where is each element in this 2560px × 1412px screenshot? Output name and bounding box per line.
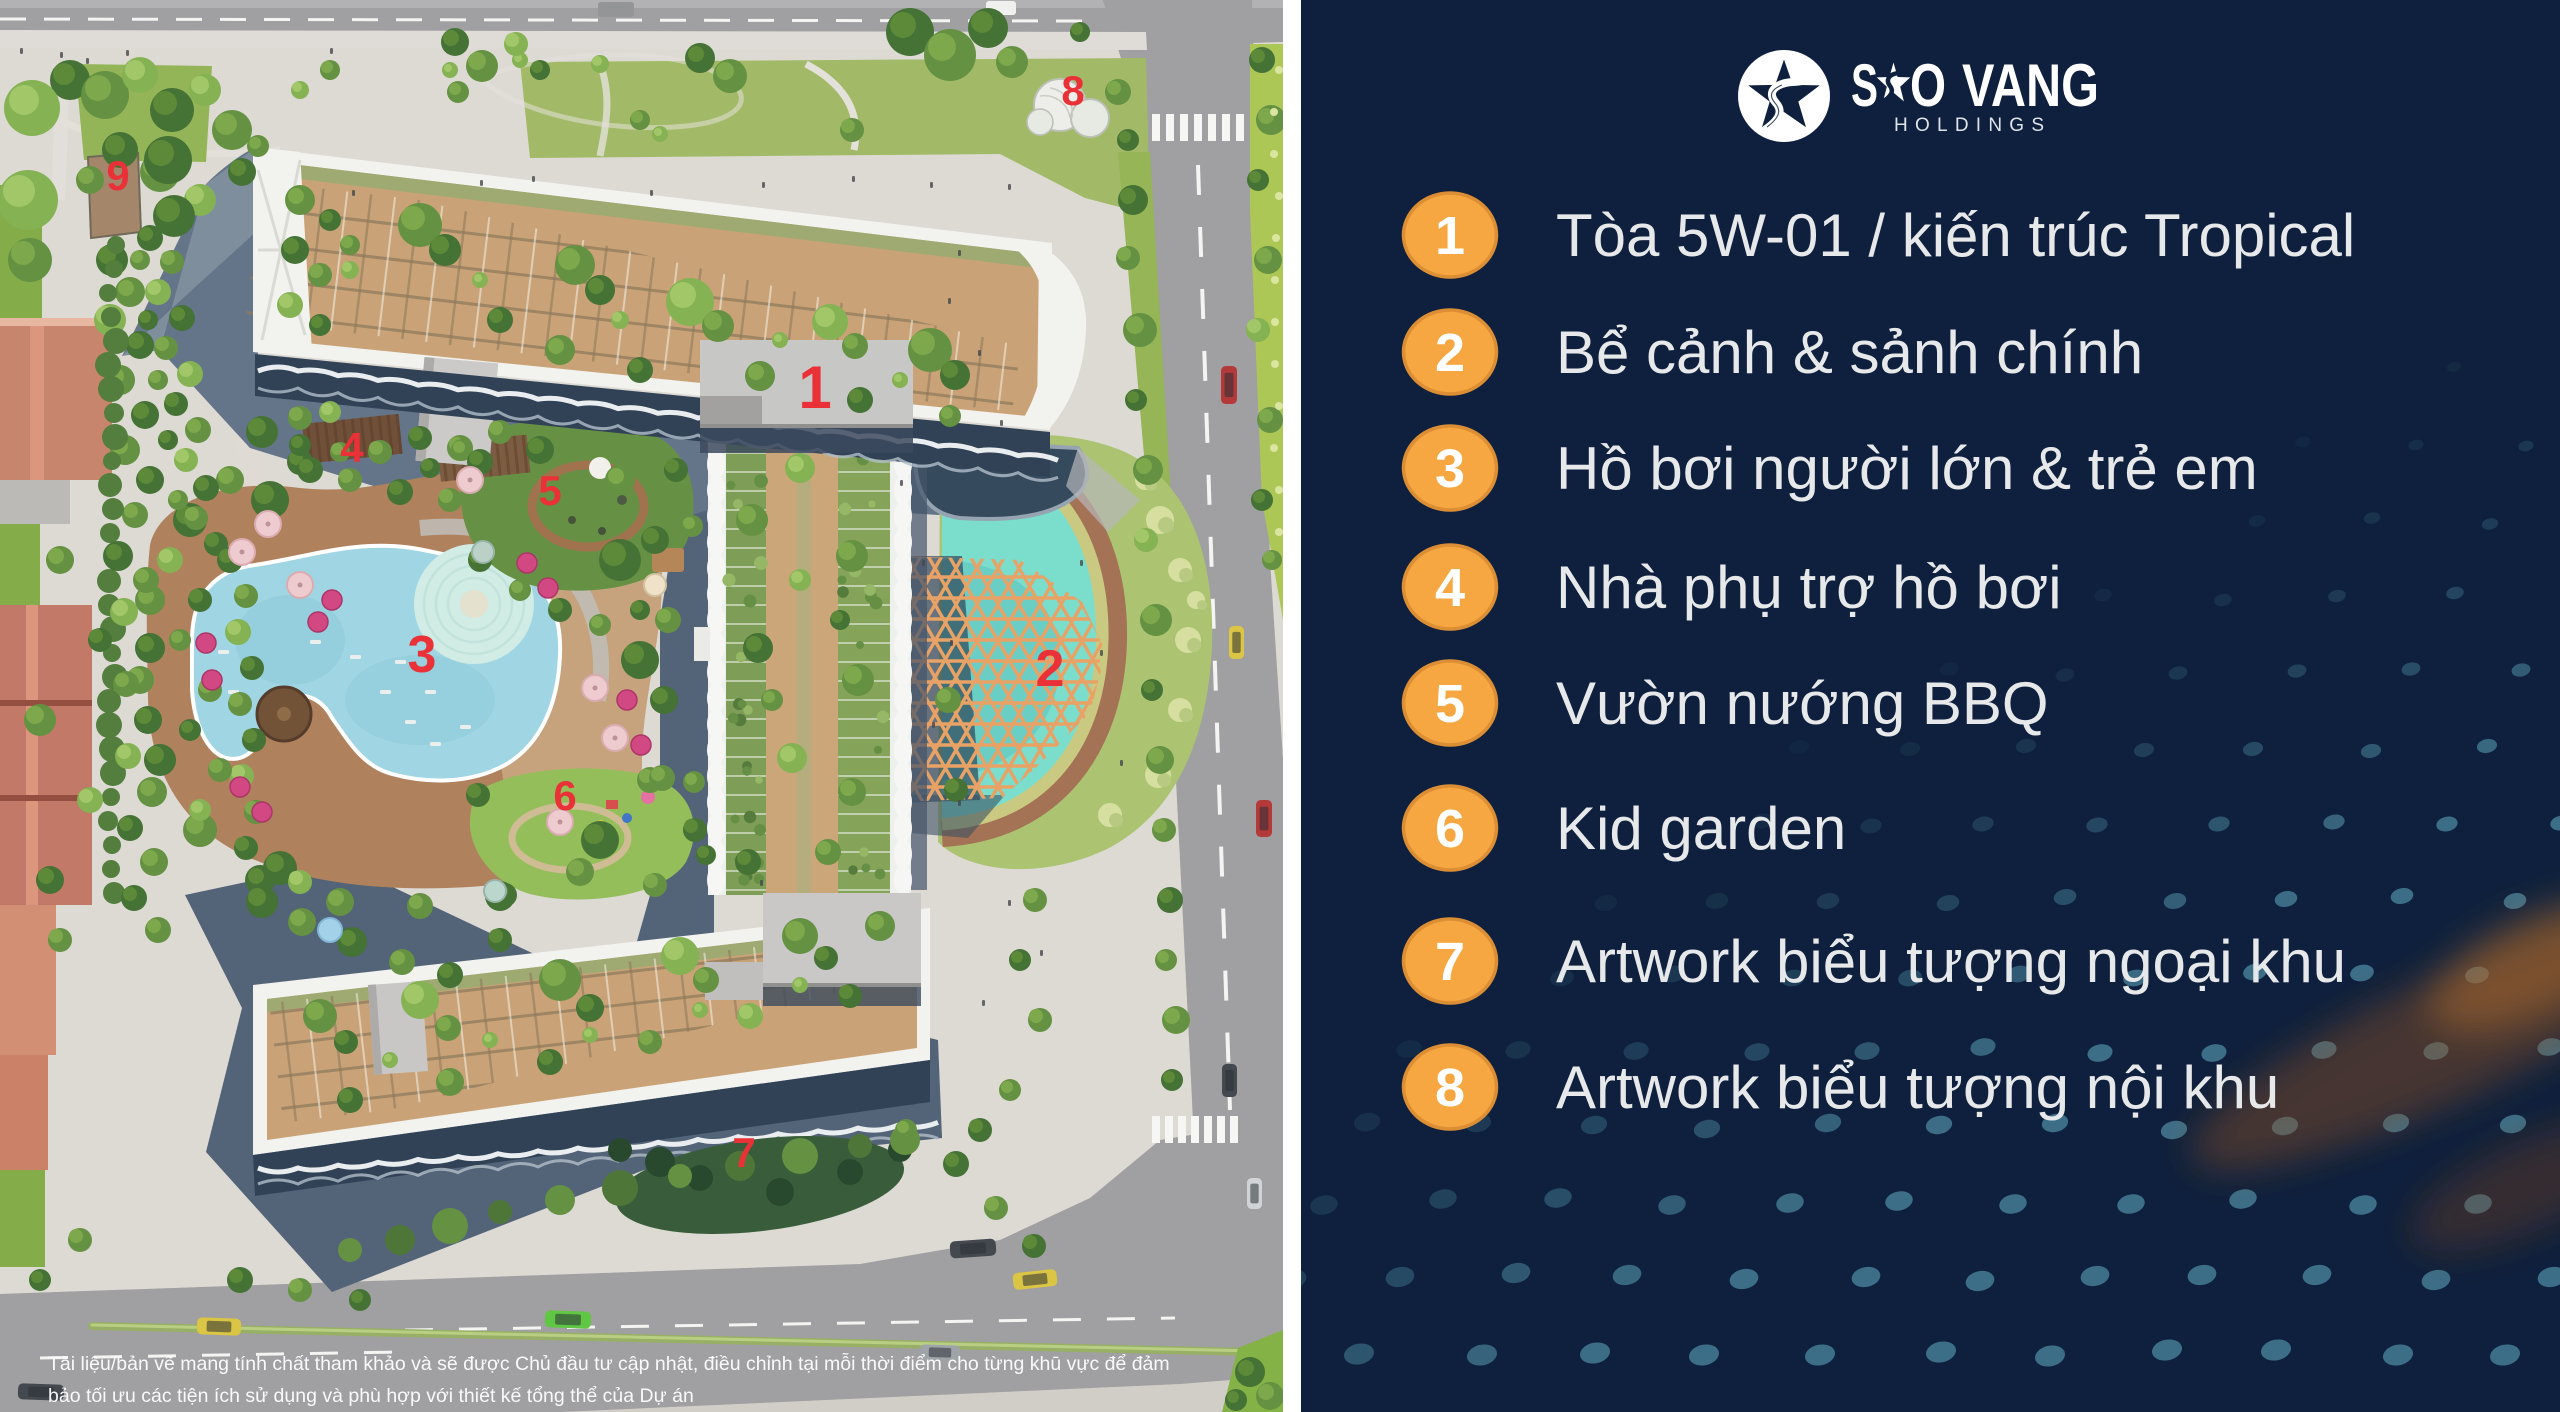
svg-text:Nhà phụ trợ hồ bơi: Nhà phụ trợ hồ bơi xyxy=(1556,554,2062,621)
svg-text:O: O xyxy=(1910,52,1946,119)
svg-text:VANG: VANG xyxy=(1962,52,2099,119)
svg-text:8: 8 xyxy=(1435,1058,1465,1118)
svg-text:2: 2 xyxy=(1435,323,1465,383)
svg-text:5: 5 xyxy=(1435,674,1465,734)
svg-text:6: 6 xyxy=(1435,799,1465,859)
svg-text:Tòa 5W-01 / kiến trúc Tropical: Tòa 5W-01 / kiến trúc Tropical xyxy=(1556,202,2355,269)
svg-text:4: 4 xyxy=(1435,558,1465,618)
svg-text:Artwork biểu tượng ngoại khu: Artwork biểu tượng ngoại khu xyxy=(1556,928,2346,995)
svg-text:Hồ bơi người lớn & trẻ em: Hồ bơi người lớn & trẻ em xyxy=(1556,435,2258,502)
svg-text:Artwork biểu tượng nội khu: Artwork biểu tượng nội khu xyxy=(1556,1054,2279,1121)
svg-text:Vườn nướng BBQ: Vườn nướng BBQ xyxy=(1556,670,2049,737)
svg-text:Bể cảnh & sảnh chính: Bể cảnh & sảnh chính xyxy=(1556,319,2143,386)
svg-text:S: S xyxy=(1851,52,1878,119)
svg-text:1: 1 xyxy=(1435,206,1465,266)
svg-text:3: 3 xyxy=(1435,439,1465,499)
svg-text:7: 7 xyxy=(1435,932,1465,992)
svg-text:Kid garden: Kid garden xyxy=(1556,795,1846,862)
